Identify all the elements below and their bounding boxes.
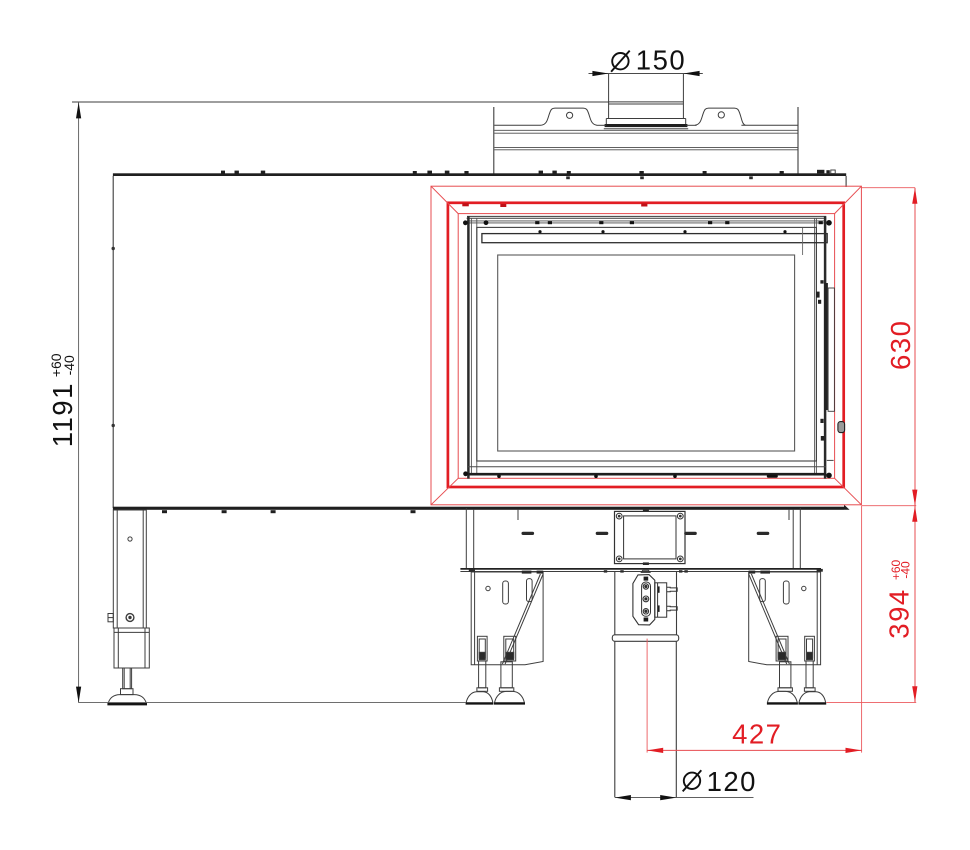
svg-text:-40: -40 (61, 355, 77, 375)
svg-text:630: 630 (885, 320, 916, 370)
svg-text:1191: 1191 (47, 382, 78, 447)
svg-text:120: 120 (707, 766, 757, 797)
svg-text:150: 150 (636, 45, 686, 76)
svg-text:394: 394 (884, 588, 915, 638)
svg-text:-40: -40 (899, 561, 913, 579)
svg-text:427: 427 (732, 718, 782, 749)
